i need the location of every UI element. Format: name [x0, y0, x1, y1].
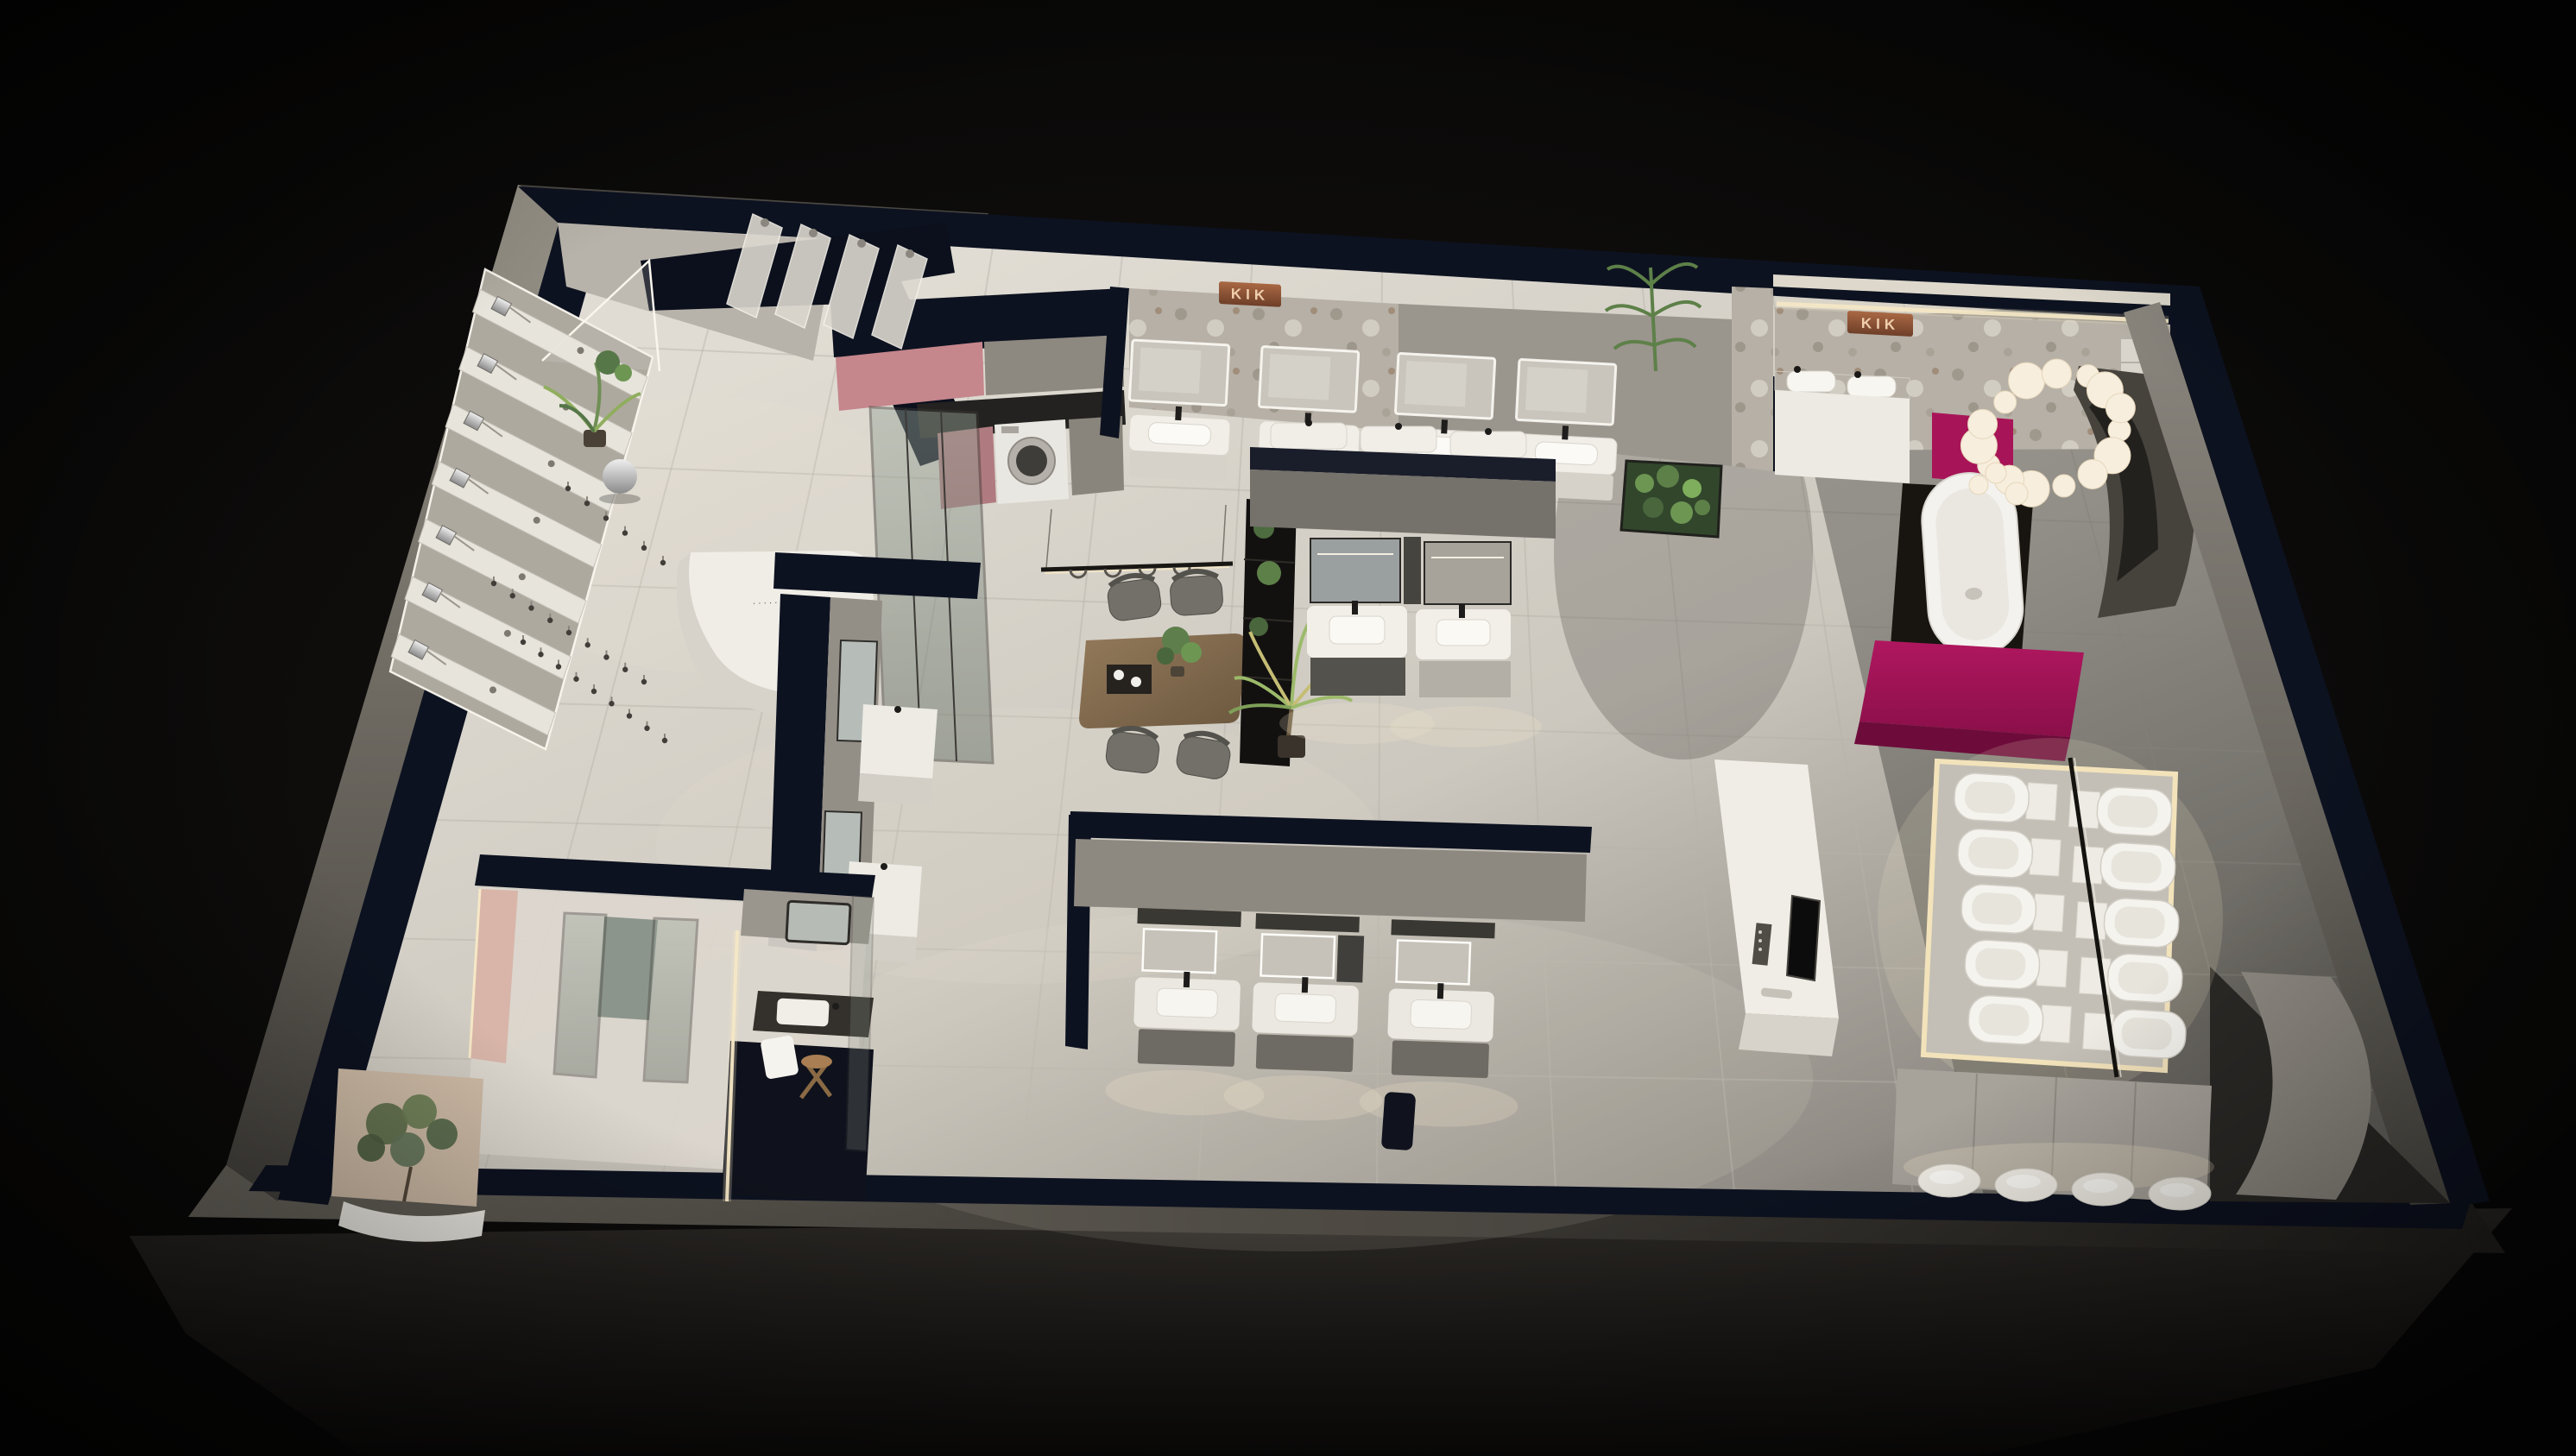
- vignette-overlay: [0, 0, 2576, 1456]
- showroom-render: KIK KIK: [0, 0, 2576, 1456]
